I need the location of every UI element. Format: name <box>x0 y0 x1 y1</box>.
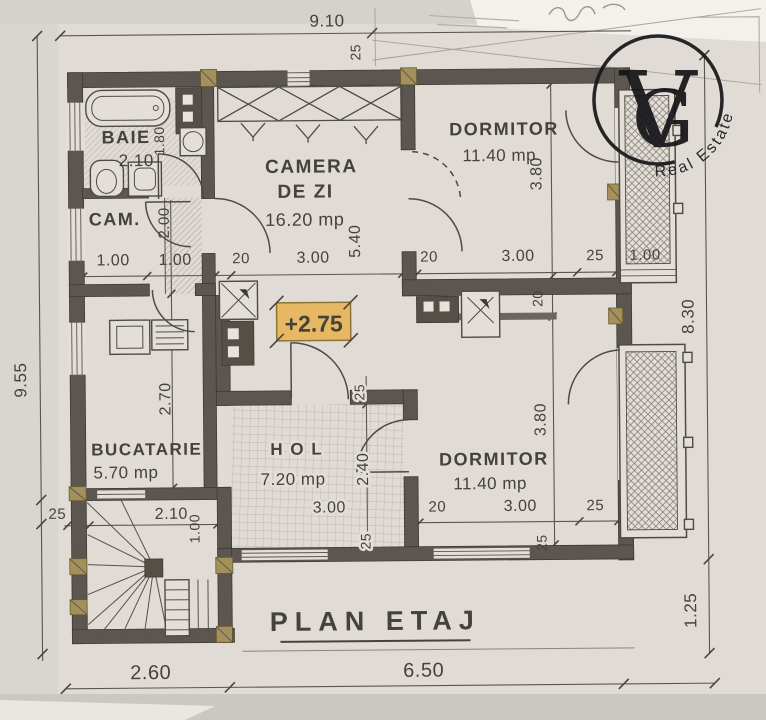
room-label-kitchen: BUCATARIE <box>91 440 202 460</box>
dim-dorm1-depth: 3.80 <box>528 157 545 190</box>
dim-dorm2-depth: 3.80 <box>532 403 549 436</box>
dim-dorm1-wall: 25 <box>586 247 604 264</box>
room-label-living-2: DE ZI <box>277 181 333 202</box>
dim-landing-wall: 20 <box>232 250 250 267</box>
cabinet-module <box>222 321 254 365</box>
dim-bottom-left: 2.60 <box>130 662 171 684</box>
dim-stair-depth: 2.00 <box>156 207 173 238</box>
dim-dorm2-wall-bottom: 25 <box>534 534 550 551</box>
dim-hol-width: 3.00 <box>313 499 346 516</box>
room-label-hol: H O L <box>270 440 323 459</box>
dim-mid-wall: 20 <box>529 290 545 307</box>
window-left-baie <box>66 103 85 151</box>
dim-baie-depth: 1.80 <box>151 126 167 155</box>
window-left-cam <box>67 209 86 261</box>
window-bottom-dorm2 <box>434 548 530 559</box>
dim-total-height: 9.55 <box>11 363 30 398</box>
dim-hol-wall-bottom: 25 <box>358 533 374 550</box>
room-area-dorm2: 11.40 mp <box>453 474 527 494</box>
room-label-dorm1: DORMITOR <box>449 118 559 139</box>
dim-living-width: 3.00 <box>296 249 329 266</box>
window-bottom-hol <box>242 549 328 560</box>
stair-newel <box>145 559 163 577</box>
level-marker-value: +2.75 <box>284 310 343 337</box>
window-left-kitchen <box>68 323 87 375</box>
room-area-living: 16.20 mp <box>265 209 344 230</box>
room-label-dorm2: DORMITOR <box>439 449 549 470</box>
dim-right-height: 8.30 <box>678 299 697 334</box>
balcony-bottom <box>619 344 694 538</box>
plan-title-text: PLAN ETAJ <box>270 605 481 637</box>
window-top-living <box>287 69 309 86</box>
bathtub <box>86 90 170 127</box>
dim-bottom-right: 6.50 <box>403 659 444 681</box>
dim-stair-exit: 1.00 <box>186 514 202 543</box>
room-label-living-1: CAMERA <box>265 156 358 178</box>
shaft-module <box>176 88 202 134</box>
kitchen-fixtures <box>110 320 188 355</box>
room-area-hol: 7.20 mp <box>260 470 325 490</box>
dim-balcony-width: 1.00 <box>629 247 660 264</box>
level-marker: +2.75 <box>269 295 357 348</box>
dim-total-width: 9.10 <box>309 11 344 30</box>
dim-hol-wall-top: 25 <box>351 384 367 401</box>
stair-flight <box>165 580 189 636</box>
logo-letter-g: G <box>632 75 694 165</box>
room-label-baie: BAIE <box>101 127 150 147</box>
dim-cam-width: 1.00 <box>96 252 129 269</box>
dim-dorm2-wall: 25 <box>586 497 604 514</box>
dim-dorm1-width: 3.00 <box>501 248 534 265</box>
dim-right-drop: 1.25 <box>681 593 700 628</box>
shaft-x-box <box>461 291 499 337</box>
dim-stair-run: 2.10 <box>155 506 188 523</box>
dim-left-wall: 25 <box>48 506 66 523</box>
window-kitchen-bottom <box>97 490 145 498</box>
dim-kitchen-depth: 2.70 <box>157 382 174 415</box>
dim-dorm2-offset: 20 <box>428 498 446 515</box>
dim-baie-width: 2.10 <box>119 151 154 170</box>
cabinet-module <box>416 296 458 322</box>
stove <box>110 320 150 354</box>
room-label-cam: CAM. <box>89 209 141 229</box>
dim-hol-depth: 2.40 <box>355 453 372 486</box>
dim-top-wall: 25 <box>347 44 363 61</box>
dim-dorm1-offset: 20 <box>420 249 438 266</box>
dim-dorm2-width: 3.00 <box>504 498 537 515</box>
dim-living-depth: 5.40 <box>347 225 364 258</box>
room-area-kitchen: 5.70 mp <box>93 463 158 483</box>
living-fixtures <box>219 281 258 365</box>
dim-stair-width: 1.00 <box>158 252 191 269</box>
room-area-dorm1: 11.40 mp <box>462 146 536 166</box>
floor-plan-scan: +2.75 BAIE 2.10 1.80 CAM. 1.00 CAMERA DE… <box>0 0 766 720</box>
